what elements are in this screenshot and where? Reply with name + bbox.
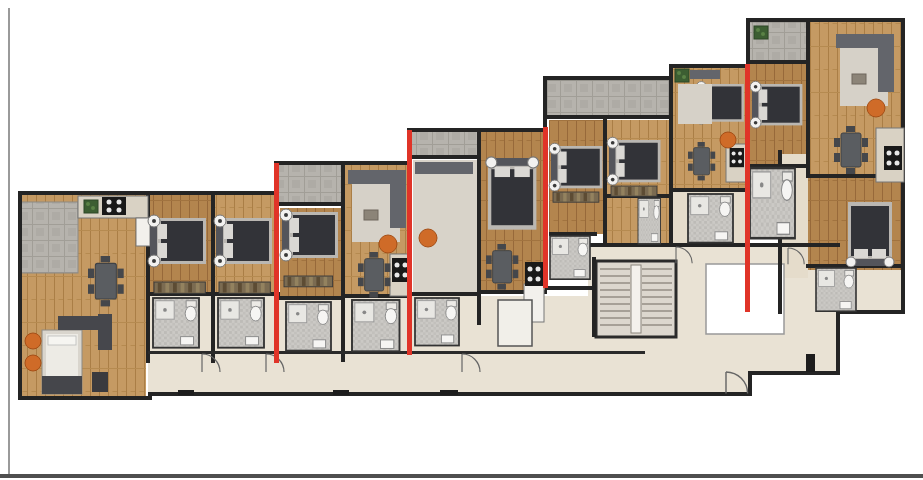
stove xyxy=(887,151,892,156)
dining-table xyxy=(369,292,378,298)
sofa xyxy=(415,162,473,174)
wall xyxy=(588,243,840,247)
accent-chair xyxy=(25,355,41,371)
double-bed xyxy=(152,259,156,263)
plant xyxy=(675,69,689,82)
bathroom xyxy=(250,306,261,321)
bathroom xyxy=(218,298,264,348)
wardrobe xyxy=(223,283,227,293)
terrace xyxy=(411,131,479,157)
double-bed xyxy=(553,147,557,151)
stove xyxy=(528,267,533,272)
stove xyxy=(738,160,742,164)
double-bed xyxy=(616,163,624,177)
bathroom xyxy=(228,308,232,312)
bathroom xyxy=(381,340,394,349)
rug xyxy=(417,178,469,232)
storage-closet xyxy=(498,300,532,346)
dining-table xyxy=(834,138,840,147)
bathroom xyxy=(816,268,856,311)
bathroom xyxy=(652,234,658,242)
dining-table xyxy=(365,259,384,291)
dining-table xyxy=(862,138,868,147)
stove xyxy=(738,152,742,156)
double-bed xyxy=(227,221,269,261)
dining-table xyxy=(688,164,693,171)
terrace xyxy=(20,202,78,273)
expansion-joint xyxy=(274,163,279,363)
stove xyxy=(884,146,902,170)
dining-table xyxy=(497,244,506,250)
double-bed xyxy=(846,257,856,267)
plant xyxy=(84,200,98,213)
double-bed xyxy=(491,169,533,225)
wardrobe xyxy=(614,187,617,196)
bathroom xyxy=(688,194,733,243)
dining-table xyxy=(694,148,710,175)
double-bed xyxy=(224,224,233,239)
double-bed xyxy=(759,89,767,103)
wardrobe xyxy=(648,187,651,196)
stove xyxy=(895,151,900,156)
plant xyxy=(754,26,768,39)
bathroom xyxy=(446,306,457,320)
wardrobe xyxy=(556,193,559,202)
stove xyxy=(536,277,541,282)
threshold xyxy=(178,390,194,395)
sheet-border-left xyxy=(8,8,10,474)
double-bed xyxy=(558,152,566,166)
dining-table xyxy=(846,126,855,132)
bathroom xyxy=(750,168,795,238)
bathroom xyxy=(643,207,645,210)
wall xyxy=(278,296,345,300)
wardrobe xyxy=(196,283,200,293)
threshold xyxy=(333,390,349,395)
double-bed xyxy=(495,167,510,177)
bathroom xyxy=(385,309,396,324)
double-bed xyxy=(561,149,600,186)
double-bed xyxy=(872,249,886,258)
double-bed xyxy=(619,143,658,180)
sofa-set xyxy=(390,184,406,228)
double-bed xyxy=(293,215,335,255)
stove xyxy=(102,197,126,215)
wardrobe xyxy=(563,193,566,202)
double-bed xyxy=(284,253,288,257)
dining-table xyxy=(710,152,715,159)
bathroom xyxy=(153,298,199,348)
guest-bed xyxy=(42,330,82,394)
stove xyxy=(117,208,122,213)
double-bed xyxy=(161,221,203,261)
bathroom xyxy=(425,308,429,312)
dining-table xyxy=(513,270,519,279)
plant xyxy=(86,202,90,206)
stove xyxy=(730,148,744,167)
dining-table xyxy=(841,133,861,167)
dining-table xyxy=(88,284,94,293)
double-bed xyxy=(611,141,615,145)
bathroom xyxy=(286,302,331,351)
wardrobe xyxy=(181,283,185,293)
plant xyxy=(682,75,686,79)
double-bed xyxy=(553,184,557,188)
stove xyxy=(887,161,892,166)
double-bed xyxy=(884,257,894,267)
bathroom xyxy=(181,337,194,345)
wardrobe xyxy=(628,187,631,196)
bathroom xyxy=(578,243,588,256)
wardrobe xyxy=(316,277,320,286)
wall xyxy=(748,60,810,64)
stove xyxy=(403,273,408,278)
double-bed xyxy=(152,219,156,223)
double-bed xyxy=(214,215,272,267)
stove xyxy=(525,262,543,286)
double-bed xyxy=(486,157,539,230)
plant xyxy=(84,200,98,213)
expansion-joint xyxy=(407,130,412,355)
double-bed xyxy=(754,85,758,89)
sofa-set xyxy=(836,34,894,117)
wardrobe xyxy=(253,283,257,293)
stove xyxy=(102,197,126,215)
dining-table xyxy=(698,142,705,147)
bathroom xyxy=(362,310,366,314)
stove xyxy=(395,273,400,278)
dining-table xyxy=(688,152,693,159)
sheet-border-bottom xyxy=(0,474,923,478)
wardrobe xyxy=(219,282,270,293)
sofa-set xyxy=(364,210,378,220)
wardrobe xyxy=(158,283,162,293)
double-bed xyxy=(280,209,338,261)
wardrobe xyxy=(238,283,242,293)
wardrobe xyxy=(288,277,292,286)
wardrobe xyxy=(577,193,580,202)
plant xyxy=(91,206,95,210)
dining-table xyxy=(710,164,715,171)
wardrobe xyxy=(642,187,645,196)
bathroom xyxy=(296,312,300,316)
bathroom xyxy=(574,270,585,277)
double-bed xyxy=(707,86,741,119)
floor-plan-drawing xyxy=(0,0,923,480)
dining-table xyxy=(117,284,123,293)
wall xyxy=(545,286,596,290)
bathroom xyxy=(777,223,790,235)
dining-table xyxy=(385,263,391,272)
stove xyxy=(107,200,112,205)
dining-table xyxy=(101,256,110,262)
floor-plan-canvas xyxy=(0,0,923,480)
dining-table xyxy=(101,300,110,306)
column xyxy=(806,354,815,372)
guest-bed xyxy=(48,336,76,345)
double-bed xyxy=(754,121,758,125)
stove xyxy=(730,148,744,167)
guest-bed xyxy=(42,376,82,394)
double-bed xyxy=(759,107,767,121)
wall xyxy=(411,292,481,296)
stove xyxy=(732,160,736,164)
stove xyxy=(895,161,900,166)
sofa-set xyxy=(836,34,894,48)
wardrobe xyxy=(188,283,192,293)
bathroom xyxy=(760,182,764,187)
dining-table xyxy=(486,270,492,279)
wall xyxy=(806,20,810,174)
wall xyxy=(592,257,596,337)
wardrobe xyxy=(261,283,265,293)
stove xyxy=(732,152,736,156)
staircase xyxy=(596,261,676,337)
wardrobe xyxy=(553,192,599,202)
wall xyxy=(276,202,345,206)
dining-table xyxy=(497,284,506,290)
wardrobe xyxy=(165,283,169,293)
bathroom xyxy=(638,198,661,244)
double-bed xyxy=(218,259,222,263)
bathroom xyxy=(840,302,851,309)
plant xyxy=(756,28,760,32)
wall xyxy=(545,115,671,119)
double-bed xyxy=(854,249,868,258)
dining-table xyxy=(493,251,512,283)
plant xyxy=(754,26,768,39)
sofa-set xyxy=(867,99,885,117)
double-bed xyxy=(158,243,167,258)
plant xyxy=(675,69,689,82)
stove xyxy=(884,146,902,170)
stove xyxy=(403,263,408,268)
terrace xyxy=(278,164,344,205)
expansion-joint xyxy=(543,127,548,288)
dining-table xyxy=(834,153,840,162)
wall xyxy=(669,66,673,246)
double-bed xyxy=(486,157,497,168)
wardrobe xyxy=(621,187,624,196)
double-bed xyxy=(158,224,167,239)
bathroom xyxy=(352,300,400,351)
rug xyxy=(678,84,712,124)
wardrobe xyxy=(635,187,638,196)
dining-table xyxy=(95,263,116,299)
wardrobe xyxy=(611,186,657,196)
bathroom xyxy=(559,245,562,248)
dining-table xyxy=(513,255,519,264)
double-bed xyxy=(750,81,802,128)
double-bed xyxy=(284,213,288,217)
dining-table xyxy=(358,278,364,287)
staircase xyxy=(631,265,641,333)
stove xyxy=(107,208,112,213)
accent-chair xyxy=(720,132,736,148)
double-bed xyxy=(846,202,894,267)
bathroom xyxy=(246,337,259,345)
wardrobe xyxy=(309,277,313,286)
dining-table xyxy=(486,255,492,264)
double-bed xyxy=(851,206,889,256)
wardrobe xyxy=(154,282,205,293)
dining-table xyxy=(88,269,94,278)
bathroom xyxy=(313,340,326,348)
bathroom xyxy=(715,232,728,240)
threshold xyxy=(440,390,458,395)
expansion-joint xyxy=(745,64,750,312)
wardrobe xyxy=(230,283,234,293)
sofa-set xyxy=(878,48,894,92)
dining-table xyxy=(698,176,705,181)
wardrobe xyxy=(302,277,306,286)
dining-table xyxy=(369,252,378,258)
accent-chair xyxy=(25,333,41,349)
sofa-set xyxy=(852,74,866,84)
sofa-set xyxy=(379,235,397,253)
plant xyxy=(761,32,765,36)
bathroom xyxy=(825,277,828,280)
wardrobe xyxy=(173,283,177,293)
dining-table xyxy=(385,278,391,287)
cabinet xyxy=(92,372,108,392)
double-bed xyxy=(607,137,660,185)
wardrobe xyxy=(590,193,593,202)
double-bed xyxy=(528,157,539,168)
bathroom xyxy=(844,275,854,288)
wardrobe xyxy=(570,193,573,202)
wardrobe xyxy=(284,276,333,287)
wardrobe xyxy=(246,283,250,293)
wall xyxy=(603,118,607,245)
dining-table xyxy=(862,153,868,162)
double-bed xyxy=(224,243,233,258)
bathroom xyxy=(720,202,731,216)
terrace xyxy=(547,80,669,117)
stove xyxy=(536,267,541,272)
double-bed xyxy=(290,237,299,252)
sofa-set xyxy=(348,170,406,253)
double-bed xyxy=(762,87,800,123)
stove xyxy=(395,263,400,268)
bathroom xyxy=(782,180,793,201)
dining-table xyxy=(846,168,855,174)
dining-table xyxy=(358,263,364,272)
bathroom xyxy=(441,335,453,343)
dining-table xyxy=(117,269,123,278)
stove xyxy=(117,200,122,205)
bathroom xyxy=(654,206,659,220)
stove xyxy=(528,277,533,282)
wall xyxy=(409,155,479,159)
double-bed xyxy=(549,143,602,191)
wall xyxy=(671,188,748,192)
double-bed xyxy=(514,167,529,177)
double-bed xyxy=(611,178,615,182)
wardrobe xyxy=(324,277,328,286)
wardrobe xyxy=(295,277,299,286)
bathroom xyxy=(163,308,167,312)
wall xyxy=(341,162,345,362)
double-bed xyxy=(558,169,566,183)
sofa xyxy=(690,70,720,79)
bathroom xyxy=(550,236,590,279)
double-bed xyxy=(218,219,222,223)
accent-chair xyxy=(419,229,437,247)
double-bed xyxy=(616,146,624,160)
plant xyxy=(677,71,681,75)
double-bed xyxy=(290,218,299,233)
double-bed xyxy=(148,215,206,267)
wardrobe xyxy=(98,314,112,350)
wardrobe xyxy=(584,193,587,202)
bathroom xyxy=(318,310,329,324)
sofa-set xyxy=(348,170,406,184)
stove xyxy=(525,262,543,286)
bathroom xyxy=(698,204,702,208)
bathroom xyxy=(185,306,196,321)
bathroom xyxy=(415,298,459,346)
